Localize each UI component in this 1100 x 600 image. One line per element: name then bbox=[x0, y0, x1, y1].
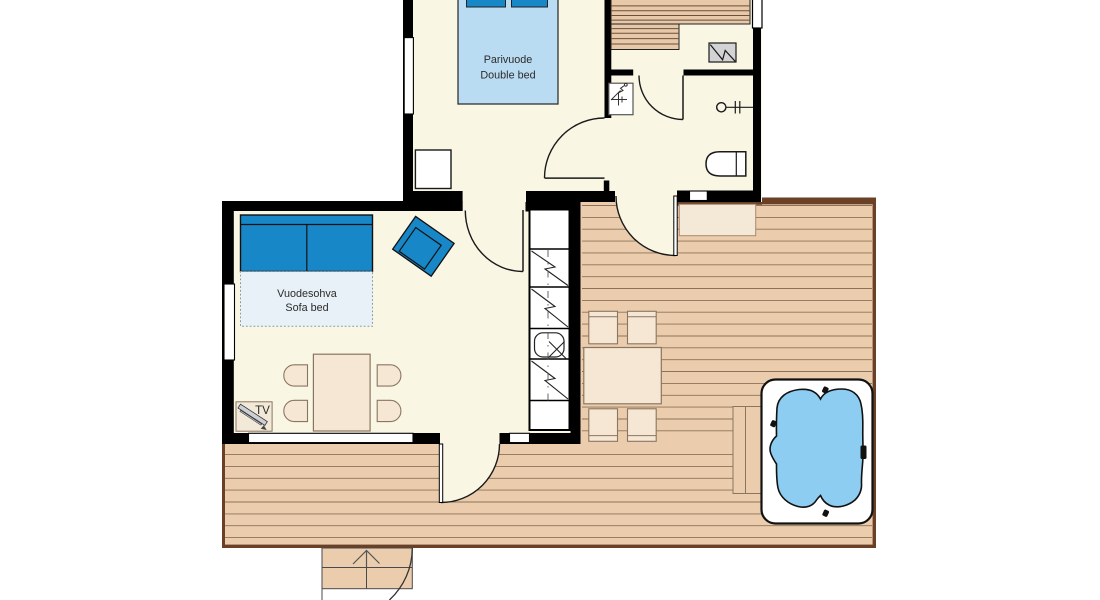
svg-text:Double bed: Double bed bbox=[480, 70, 535, 82]
svg-text:Vuodesohva: Vuodesohva bbox=[277, 288, 337, 300]
svg-text:Sofa bed: Sofa bed bbox=[285, 302, 328, 314]
svg-text:Parivuode: Parivuode bbox=[484, 54, 533, 66]
